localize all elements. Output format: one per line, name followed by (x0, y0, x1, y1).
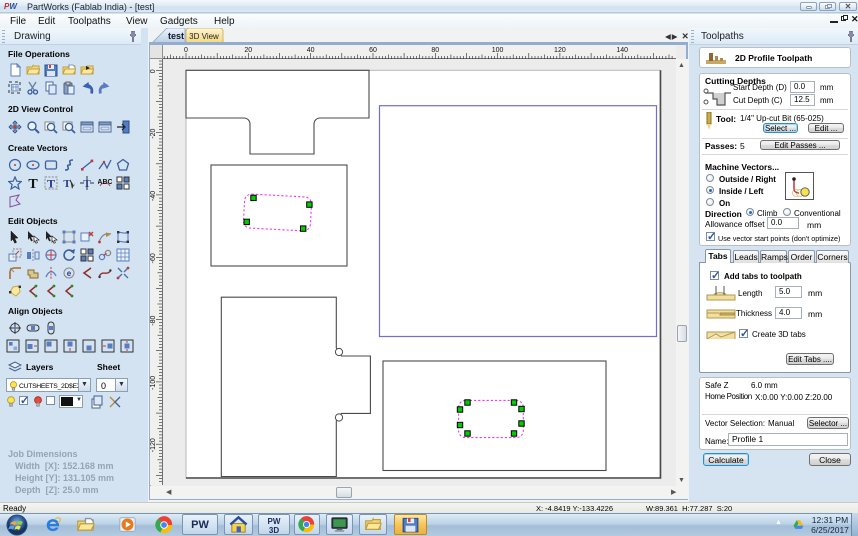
svg-text:0: 0 (184, 47, 188, 54)
svg-text:40: 40 (307, 47, 315, 54)
svg-text:-60: -60 (150, 253, 157, 263)
svg-text:-80: -80 (150, 315, 157, 325)
svg-text:0: 0 (150, 69, 157, 73)
svg-text:20: 20 (244, 47, 252, 54)
svg-text:-100: -100 (150, 376, 157, 390)
svg-text:60: 60 (369, 47, 377, 54)
svg-text:3D View: 3D View (189, 32, 219, 41)
svg-text:-120: -120 (150, 438, 157, 452)
svg-text:-20: -20 (150, 128, 157, 138)
svg-text:-40: -40 (150, 191, 157, 201)
svg-text:120: 120 (554, 47, 566, 54)
svg-text:100: 100 (492, 47, 504, 54)
svg-text:test: test (168, 31, 184, 41)
svg-text:140: 140 (616, 47, 628, 54)
svg-text:80: 80 (431, 47, 439, 54)
